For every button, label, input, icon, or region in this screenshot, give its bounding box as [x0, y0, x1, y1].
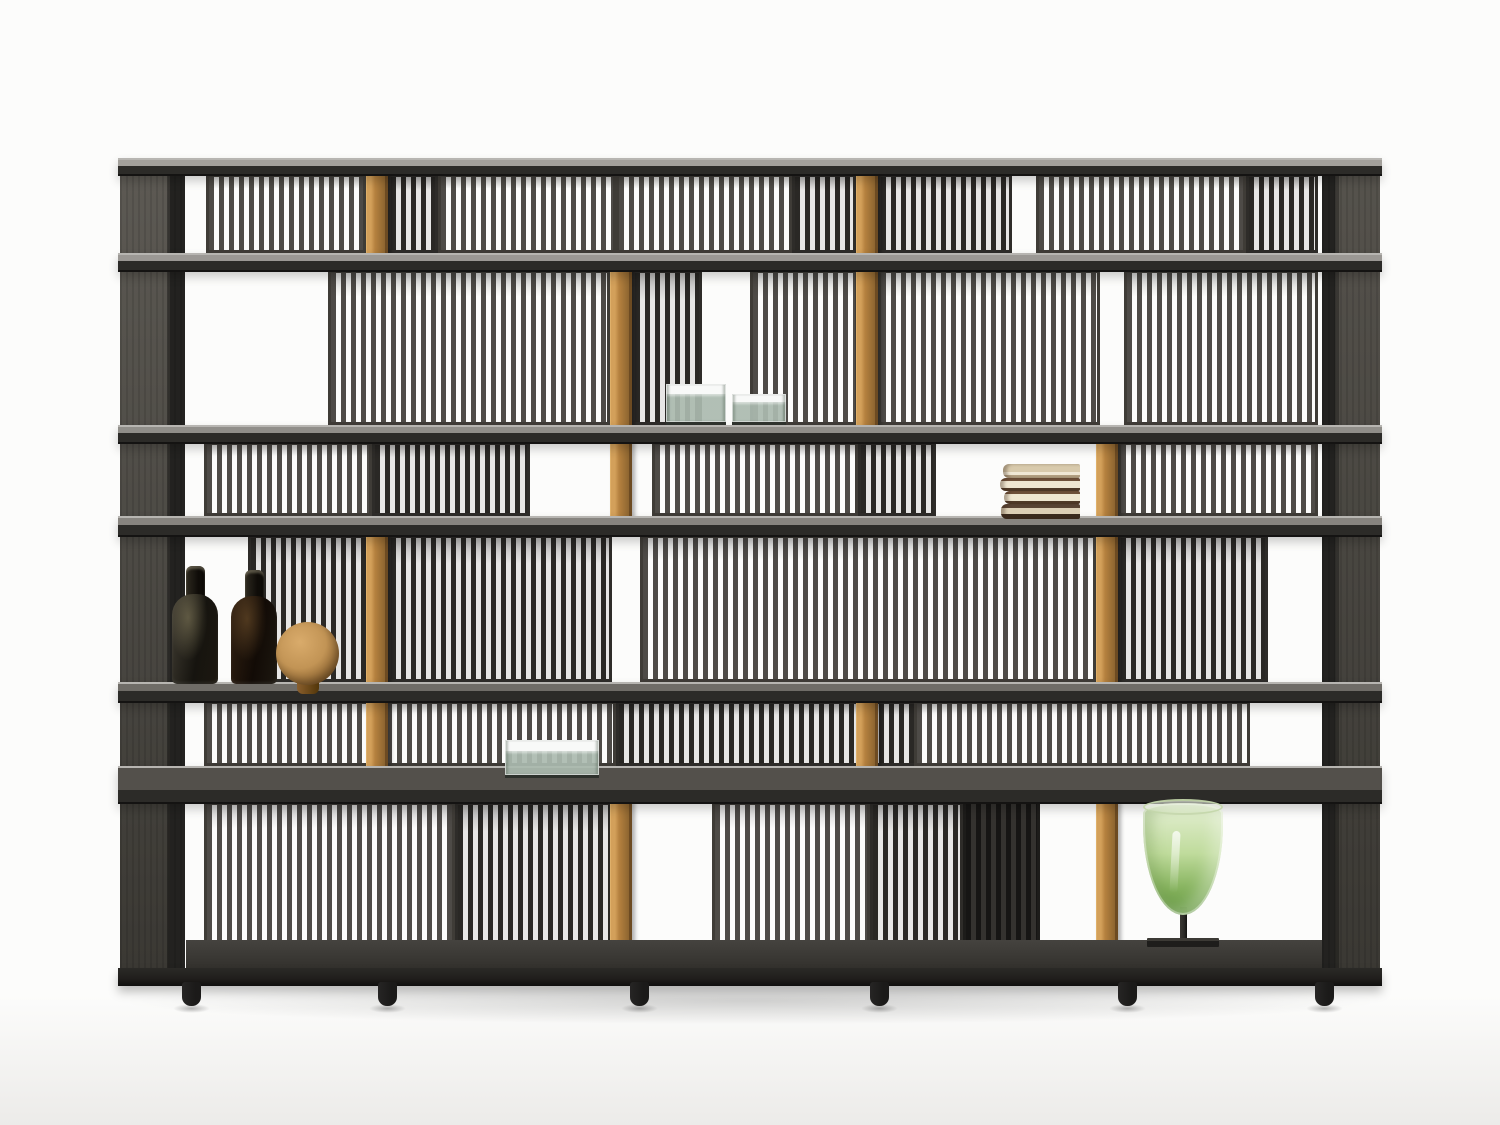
bronze-post [856, 699, 878, 768]
slat-panel-row3-4 [858, 440, 936, 518]
bronze-post [610, 268, 632, 427]
shelf-board [118, 425, 1382, 444]
bronze-post [856, 268, 878, 427]
slat-panel-row3-5 [1118, 440, 1318, 518]
foot [630, 982, 649, 1006]
slat-panel-row2-5 [1124, 268, 1318, 427]
book [1003, 464, 1080, 478]
shelf-board [118, 253, 1382, 272]
slat-panel-row3-3 [652, 440, 858, 518]
slat-panel-row6-5 [963, 800, 1040, 958]
slat-panel-row1-2 [388, 172, 438, 255]
goblet-bowl [1143, 803, 1223, 915]
slat-panel-row1-3 [438, 172, 616, 255]
slat-panel-row4-4 [1118, 533, 1268, 684]
glass-box [732, 394, 786, 425]
bottle-body [172, 594, 218, 684]
bronze-post [610, 800, 632, 958]
bronze-post [1096, 800, 1118, 958]
slat-panel-row1-7 [1036, 172, 1246, 255]
goblet-base [1147, 938, 1219, 947]
bookshelf-product-photo [0, 0, 1500, 1125]
unit-floor-shadow [130, 986, 1370, 1024]
slat-panel-row3-1 [204, 440, 372, 518]
slat-panel-row1-4 [616, 172, 792, 255]
wooden-sphere [276, 622, 339, 685]
shelf-board [118, 158, 1382, 176]
slat-panel-row2-1 [328, 268, 610, 427]
bronze-post [1096, 533, 1118, 684]
foot [870, 982, 889, 1006]
bottle-body [231, 596, 277, 684]
right-upright-panel [1322, 158, 1380, 986]
slat-panel-row6-2 [455, 800, 615, 958]
slat-panel-row1-1 [206, 172, 366, 255]
bronze-post [366, 533, 388, 684]
slat-panel-row1-5 [792, 172, 856, 255]
foot [1315, 982, 1334, 1006]
slat-panel-row4-3 [640, 533, 1096, 684]
base-plinth [118, 968, 1382, 986]
goblet-rim [1143, 799, 1223, 815]
foot [378, 982, 397, 1006]
bronze-post [366, 699, 388, 768]
left-upright-panel [120, 158, 185, 986]
slat-panel-row2-4 [878, 268, 1100, 427]
slat-panel-row6-1 [204, 800, 455, 958]
slat-panel-row4-2 [388, 533, 612, 684]
foot [182, 982, 201, 1006]
foot [1118, 982, 1137, 1006]
slat-panel-row1-6 [878, 172, 1012, 255]
book [1004, 491, 1080, 504]
bronze-post [1096, 440, 1118, 518]
slat-panel-row1-8 [1246, 172, 1318, 255]
book [1001, 504, 1080, 519]
slat-panel-row6-4 [870, 800, 963, 958]
glass-box [505, 740, 599, 778]
shelf-board [118, 516, 1382, 537]
slat-panel-row3-2 [372, 440, 530, 518]
bronze-post [856, 172, 878, 255]
book [1000, 478, 1080, 491]
bronze-post [610, 440, 632, 518]
slat-panel-row6-3 [712, 800, 870, 958]
glass-box [666, 384, 726, 425]
bronze-post [366, 172, 388, 255]
slat-panel-row5-3 [914, 699, 1250, 768]
